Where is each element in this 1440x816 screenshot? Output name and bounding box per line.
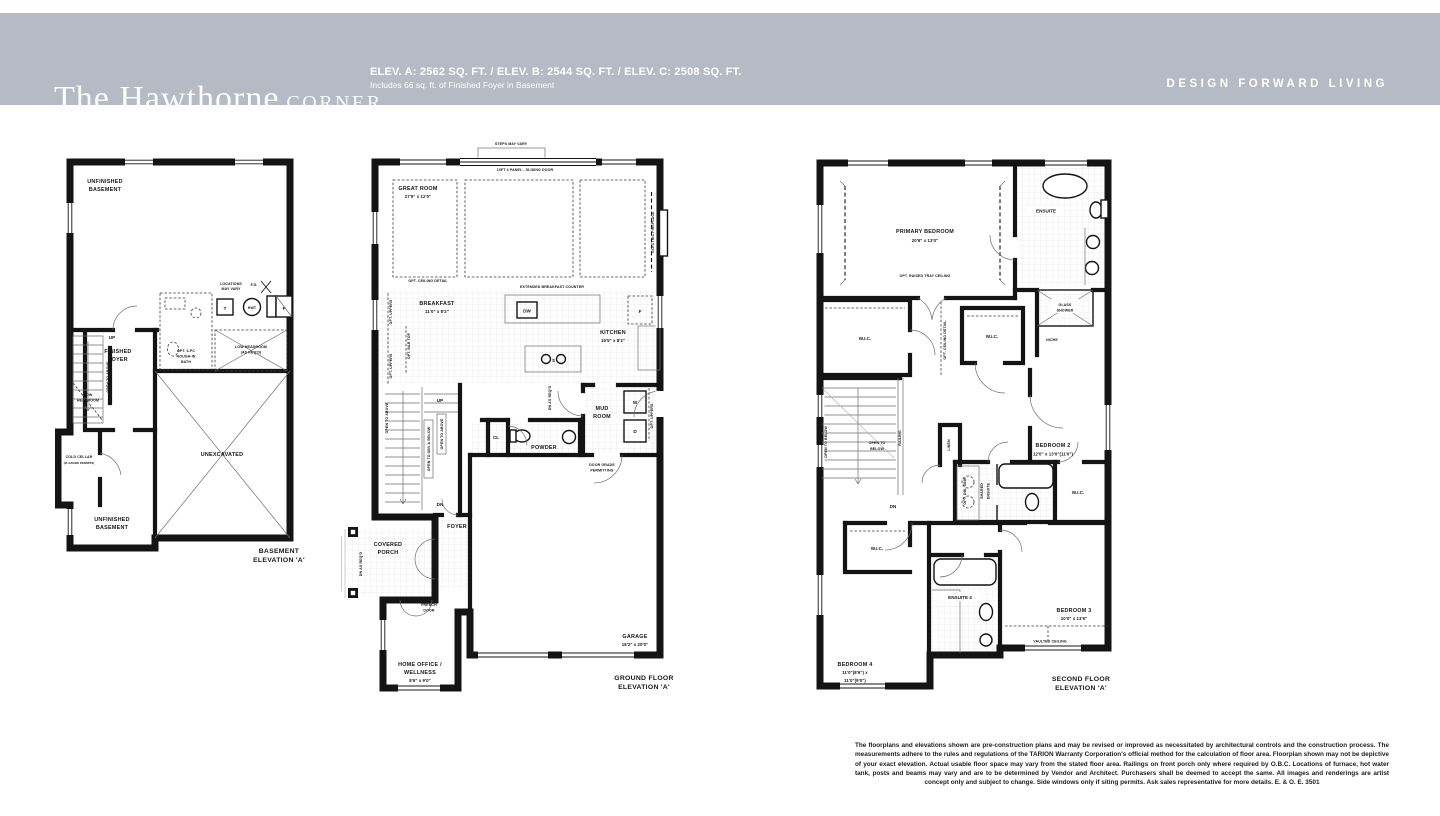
room-label-covered-porch: COVERED [374, 542, 402, 548]
room-label-primary-bedroom: PRIMARY BEDROOM [896, 229, 954, 235]
note-low-headroom-4: HEADROOM [77, 399, 99, 403]
room-label-linen: LINEN [947, 439, 951, 451]
room-label-wic-bedroom2: W.I.C. [1072, 490, 1085, 495]
elevation-info: ELEV. A: 2562 SQ. FT. / ELEV. B: 2544 SQ… [370, 66, 742, 90]
note-door-grade-2: PERMITTING [590, 469, 613, 473]
note-rough-in-bath-2: ROUGH-IN [177, 355, 196, 359]
note-locations-2: MAY VARY [222, 287, 241, 291]
elevation-square-footage: ELEV. A: 2562 SQ. FT. / ELEV. B: 2544 SQ… [370, 66, 742, 78]
note-sliding-door: 10FT 4 PANEL - SLIDING DOOR [497, 168, 554, 172]
room-label-great-room: GREAT ROOM [398, 186, 437, 192]
room-dims-home-office: 8'6" x 9'0" [409, 678, 431, 683]
fixture-tank: T [224, 306, 227, 311]
note-tray-ceiling: OPT. RAISED TRAY CEILING [900, 274, 951, 278]
room-label-wic-center: W.I.C. [986, 334, 999, 339]
room-label-wic-primary: W.I.C. [859, 336, 872, 341]
room-label-unfinished-basement-2: BASEMENT [89, 187, 122, 193]
room-label-ensuite: ENSUITE [1036, 209, 1056, 214]
model-name: The Hawthorne [54, 80, 279, 117]
note-rough-in-bath-3: BATH [181, 360, 191, 364]
room-label-cold-cellar: COLD CELLAR [66, 455, 93, 459]
note-open-to-above: OPEN TO ABOVE [106, 361, 110, 393]
note-opt-ceiling-detail: OPT. CEILING DETAIL [408, 279, 448, 283]
room-label-shared-ensuite-2: ENSUITE [987, 482, 991, 499]
note-open-to-above-2: OPEN TO ABOVE [440, 418, 444, 450]
room-label-unfinished-basement-lower: UNFINISHED [94, 517, 129, 523]
note-opt-uppers: OPT. UPPERS [389, 299, 393, 324]
room-label-kitchen: KITCHEN [600, 330, 626, 336]
elevation-note: Includes 66 sq. ft. of Finished Foyer in… [370, 80, 742, 90]
note-floor-drain: F.D. [251, 283, 258, 287]
fixture-sink: S [552, 358, 555, 363]
fixture-furnace: F [283, 306, 286, 311]
fixture-glass-shower: GLASS [1059, 303, 1072, 307]
note-opt-uppers-3: OPT. UPPERS [650, 403, 654, 428]
room-label-breakfast: BREAKFAST [419, 301, 455, 307]
room-label-unfinished-basement-lower-2: BASEMENT [96, 525, 129, 531]
fixture-hot-water-tank: HWT [248, 306, 257, 310]
room-dims-primary-bedroom: 20'6" x 13'0" [912, 238, 939, 243]
room-label-unexcavated: UNEXCAVATED [201, 452, 244, 458]
room-dims-breakfast: 11'0" x 8'2" [425, 309, 449, 314]
note-open-to-below-vert: OPEN TO BELOW [824, 426, 828, 458]
basement-floorplan: UNFINISHED BASEMENT LOCATIONS MAY VARY F… [55, 153, 315, 568]
room-label-finished-foyer-2: FOYER [108, 357, 128, 363]
note-vaulted-ceiling: VAULTED CEILING [1033, 640, 1067, 644]
room-dims-bedroom-4: 11'0"(8'6") x [842, 670, 868, 675]
note-dn-as-reqd: DN AS REQ'D [548, 386, 552, 411]
note-french-door: FRENCH [421, 603, 437, 607]
note-open-to-abv-below: OPEN TO ABV & BELOW [427, 426, 431, 471]
room-label-powder: POWDER [531, 445, 557, 451]
model-name-suffix: CORNER [286, 92, 382, 114]
plan-caption-ground-2: ELEVATION 'A' [618, 684, 670, 691]
room-label-mud-room-2: ROOM [593, 414, 611, 420]
note-opt-ceiling-detail: OPT. CEILING DETAIL [943, 320, 947, 360]
room-label-bedroom-2: BEDROOM 2 [1036, 443, 1071, 449]
plan-caption-basement: BASEMENT [259, 548, 300, 555]
plan-caption-ground: GROUND FLOOR [614, 675, 673, 682]
room-label-bedroom-3: BEDROOM 3 [1057, 608, 1092, 614]
room-label-garage: GARAGE [622, 634, 647, 640]
note-french-door-2: DOOR [423, 609, 434, 613]
brand-tagline: DESIGN FORWARD LIVING [1166, 78, 1388, 90]
note-dn-as-reqd-2: DN AS REQ'D [359, 552, 363, 577]
note-railing: RAILING [898, 430, 902, 446]
room-label-mud-room: MUD [595, 406, 608, 412]
note-door-grade: DOOR GRADE [589, 463, 615, 467]
page-title: The HawthorneCORNER [54, 80, 383, 118]
room-label-home-office-2: WELLNESS [404, 670, 436, 676]
note-opt-dbl-sink: OPT. DBL SINK [963, 477, 967, 504]
note-opt-uppers-2: OPT. UPPERS [389, 353, 393, 378]
room-dims-kitchen: 15'5" x 8'2" [601, 338, 625, 343]
second-floorplan: PRIMARY BEDROOM 20'6" x 13'0" OPT. RAISE… [800, 150, 1120, 710]
note-electric-fireplace: ELECTRIC FIREPLACE [651, 211, 655, 253]
plan-caption-basement-2: ELEVATION 'A' [253, 557, 305, 564]
fixture-dishwasher: DW [523, 309, 531, 314]
note-niche: NICHE [1046, 338, 1058, 342]
stair-label-dn: DN [890, 504, 897, 509]
basement-walls [58, 162, 290, 548]
note-locations: LOCATIONS [220, 282, 242, 286]
legal-disclaimer: The floorplans and elevations shown are … [855, 741, 1389, 787]
room-dims-great-room: 27'5" x 12'0" [405, 194, 432, 199]
plan-caption-second-2: ELEVATION 'A' [1055, 685, 1107, 692]
stair-label-up: UP [109, 335, 115, 340]
room-label-finished-foyer: FINISHED [104, 349, 131, 355]
room-dims-bedroom-2: 12'0" x 13'0"(11'0") [1033, 452, 1074, 457]
room-label-covered-porch-2: PORCH [378, 550, 399, 556]
note-opt-bar-top: OPT. BAR TOP [407, 332, 411, 359]
stair-label-up: UP [437, 398, 443, 403]
room-label-ensuite-4: ENSUITE 4 [948, 595, 972, 600]
floorplan-sheet: { "header": { "title": "The Hawthorne", … [0, 0, 1440, 816]
stair-label-dn: DN [437, 502, 444, 507]
note-low-headroom: LOW HEADROOM [235, 345, 267, 349]
room-dims-bedroom-3: 10'0" x 13'6" [1061, 616, 1088, 621]
room-label-home-office: HOME OFFICE / [398, 662, 442, 668]
note-low-headroom-3: LOW [84, 393, 93, 397]
room-label-shared-ensuite: SHARED [980, 483, 984, 499]
note-rough-in-bath: OPT. 3-PC [177, 349, 195, 353]
room-dims-garage: 18'2" x 20'0" [622, 642, 649, 647]
ground-floorplan: STEPS MAY VARY 10FT 4 PANEL - SLIDING DO… [340, 136, 690, 701]
room-label-unfinished-basement: UNFINISHED [87, 179, 122, 185]
note-open-to-below: OPEN TO [869, 441, 886, 445]
note-extended-breakfast-counter: EXTENDED BREAKFAST COUNTER [520, 285, 584, 289]
fixture-glass-shower-2: SHOWER [1057, 309, 1074, 313]
note-low-headroom-2: (AS REQ'D) [241, 351, 262, 355]
room-label-closet: CL [493, 435, 499, 440]
room-label-bedroom-4: BEDROOM 4 [838, 662, 873, 668]
fixture-washer: W [633, 400, 638, 405]
note-open-to-above: OPEN TO ABOVE [385, 402, 389, 434]
fixture-fridge: F [639, 309, 642, 314]
note-steps-may-vary: STEPS MAY VARY [495, 142, 528, 146]
room-label-wic-bedroom4: W.I.C. [871, 546, 884, 551]
note-open-to-below-2: BELOW [870, 447, 884, 451]
plan-caption-second: SECOND FLOOR [1052, 676, 1110, 683]
room-label-foyer: FOYER [447, 524, 467, 530]
room-label-cold-cellar-2: (IF GRADE PERMITS) [64, 461, 95, 465]
room-dims-bedroom-4-2: 11'0"(9'0") [844, 678, 866, 683]
